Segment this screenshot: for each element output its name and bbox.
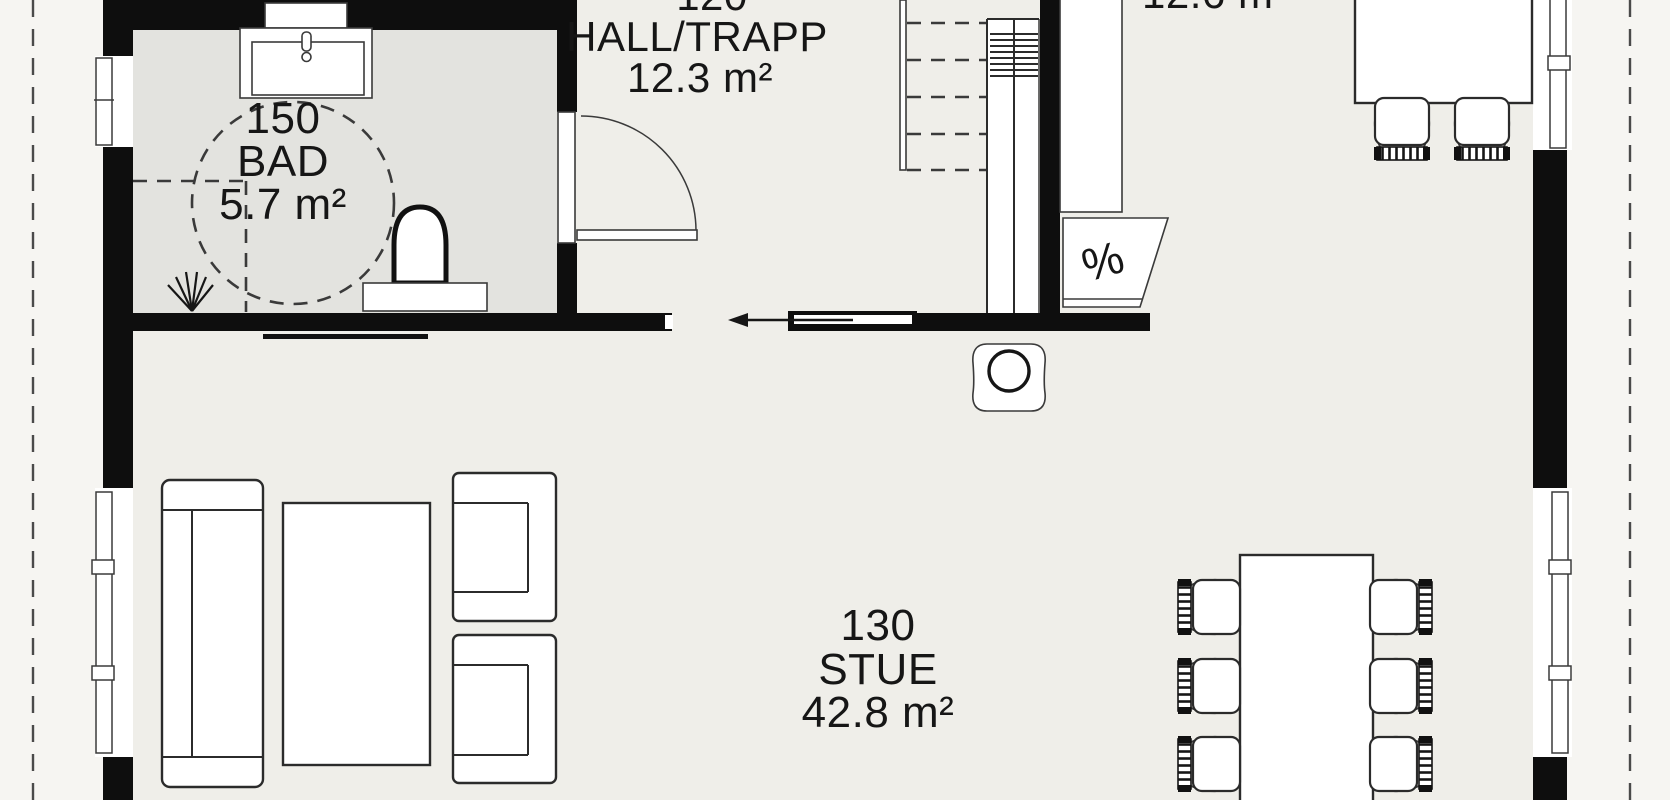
room-name-hall: HALL/TRAPP [566, 13, 828, 60]
dining-chair [1178, 579, 1240, 635]
threshold-line [263, 334, 428, 339]
window-bath-top [265, 3, 347, 28]
room-number-stue: 130 [841, 601, 916, 650]
wall-hall-bottom-left [103, 313, 672, 331]
bar-stool [1454, 98, 1510, 160]
room-area-kitchen-clipped: 12.6 m² [1142, 0, 1288, 17]
kitchen-island [1355, 0, 1532, 103]
room-number-bad: 150 [246, 94, 321, 143]
door-opening-lining [558, 112, 575, 243]
dining-chair [1370, 579, 1432, 635]
wood-stove [973, 344, 1045, 411]
armchair [453, 635, 556, 783]
dining-table [1240, 555, 1373, 800]
window-left-lower-frame [96, 492, 112, 753]
window-right-lower-frame [1552, 492, 1568, 753]
dining-chair [1178, 658, 1240, 714]
room-name-bad: BAD [237, 137, 329, 186]
coffee-table [283, 503, 430, 765]
room-area-stue: 42.8 m² [802, 688, 955, 737]
stove-flue [989, 351, 1029, 391]
window-right-upper-frame [1550, 0, 1566, 148]
toilet-bowl [394, 207, 446, 283]
floor-plan-page: % [0, 0, 1670, 800]
dining-area [1178, 555, 1432, 800]
floor-plan-drawing: % [0, 0, 1670, 800]
faucet [302, 32, 311, 51]
dining-chair [1370, 736, 1432, 792]
armchair [453, 473, 556, 621]
stair-rail-left [900, 0, 906, 170]
room-name-stue: STUE [818, 645, 937, 694]
window-left-upper-frame [96, 58, 112, 145]
door-leaf [577, 230, 697, 240]
wall-hall-kitchen [1040, 0, 1060, 331]
toilet-cistern [363, 283, 487, 311]
kitchen-counter [1060, 0, 1122, 212]
bar-stool [1374, 98, 1430, 160]
faucet-knob [302, 53, 311, 62]
dining-chair [1178, 736, 1240, 792]
room-area-hall: 12.3 m² [627, 54, 773, 101]
sofa [162, 480, 263, 787]
room-area-bad: 5.7 m² [219, 180, 347, 229]
dining-chair [1370, 658, 1432, 714]
wall-hall-bottom-right [917, 313, 1150, 331]
door-jamb-cap [665, 315, 673, 329]
